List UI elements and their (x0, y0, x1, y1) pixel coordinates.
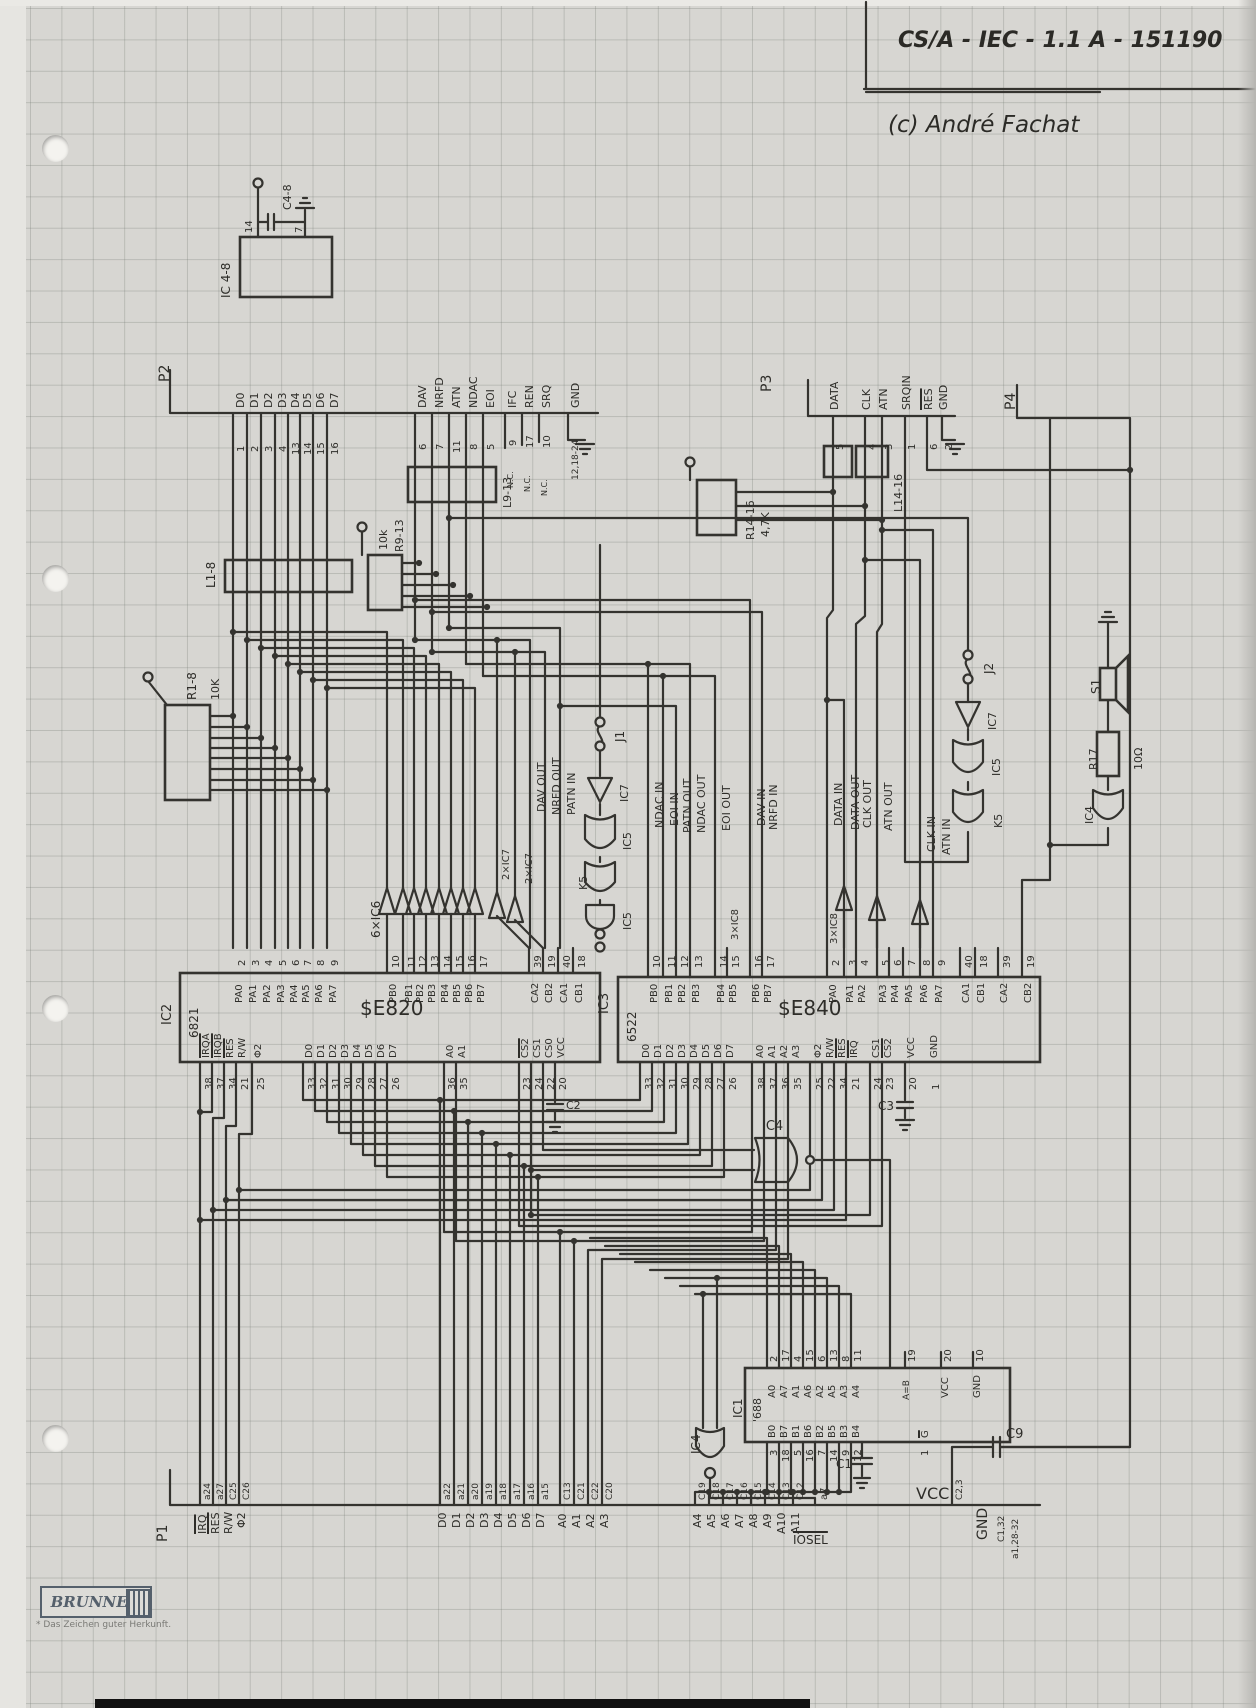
a0: A0 (557, 1513, 568, 1528)
r-w: R/W (223, 1512, 234, 1534)
pb1: PB1 (405, 984, 415, 1003)
35: 35 (794, 1077, 804, 1090)
r-w: R/W (238, 1038, 248, 1058)
15: 15 (732, 955, 742, 968)
irq: IRQ (197, 1515, 208, 1535)
16: 16 (755, 955, 765, 968)
ca2: CA2 (531, 983, 541, 1003)
b6: B6 (804, 1425, 814, 1438)
c26: C26 (243, 1482, 252, 1500)
a4: A4 (852, 1385, 862, 1398)
a3: A3 (792, 1045, 802, 1058)
buffer-2xic7 (489, 892, 523, 922)
d3: D3 (479, 1512, 490, 1527)
33: 33 (645, 1077, 655, 1090)
a7: a7 (820, 1488, 830, 1501)
28: 28 (368, 1077, 378, 1090)
c14: C14 (769, 1482, 778, 1500)
pa4: PA4 (891, 984, 901, 1003)
d3: D3 (678, 1044, 688, 1058)
g: G (921, 1430, 931, 1438)
30: 30 (344, 1077, 354, 1090)
l14-16-choke (824, 446, 852, 477)
4: 4 (279, 446, 289, 452)
d6: D6 (521, 1512, 532, 1527)
c21: C21 (578, 1482, 587, 1500)
d7: D7 (726, 1044, 736, 1058)
pa0: PA0 (829, 984, 839, 1003)
20: 20 (944, 1349, 954, 1362)
a21: a21 (458, 1483, 467, 1500)
20: 20 (559, 1077, 569, 1090)
a18: a18 (500, 1483, 509, 1500)
13: 13 (830, 1349, 840, 1362)
r14-16: R14-16 (745, 500, 756, 540)
k5-left: K5 (578, 876, 589, 890)
gate-k5-right (953, 790, 983, 822)
40: 40 (965, 955, 975, 968)
c1-32: C1,32 (998, 1516, 1007, 1542)
6: 6 (292, 960, 302, 966)
dav: DAV (417, 385, 428, 408)
d7: D7 (329, 393, 340, 408)
c2: C2 (566, 1100, 581, 1111)
d5: D5 (702, 1044, 712, 1058)
vcc: VCC (916, 1486, 949, 1502)
ic4-center: IC4 (762, 1120, 783, 1133)
d4: D4 (493, 1512, 504, 1527)
2-ic7: 2×IC7 (525, 853, 535, 884)
3: 3 (849, 960, 859, 966)
39: 39 (1003, 955, 1013, 968)
res: RES (226, 1038, 236, 1058)
buffer-6xic6 (379, 888, 483, 914)
-2: Φ2 (254, 1044, 264, 1058)
d4: D4 (290, 393, 301, 408)
p4: P4 (1004, 393, 1018, 410)
3: 3 (770, 1450, 780, 1456)
schematic-page: C4-8147IC 4-8P2D0D1D2D3D4D5D6D7123413141… (0, 0, 1256, 1708)
a0: A0 (768, 1385, 778, 1398)
ren: REN (524, 385, 535, 408)
res: RES (838, 1038, 848, 1058)
a27: a27 (217, 1483, 226, 1500)
d0: D0 (437, 1512, 448, 1527)
6: 6 (894, 960, 904, 966)
a3: A3 (840, 1385, 850, 1398)
inverter-ic7-right (956, 702, 980, 727)
39: 39 (534, 955, 544, 968)
d2: D2 (263, 393, 274, 408)
29: 29 (356, 1077, 366, 1090)
c15: C15 (755, 1482, 764, 1500)
3-ic8: 3×IC8 (830, 913, 840, 944)
c16: C16 (741, 1482, 750, 1500)
8: 8 (842, 1356, 852, 1362)
ic5-right: IC5 (991, 758, 1002, 776)
ca1: CA1 (962, 983, 972, 1003)
17: 17 (526, 435, 536, 448)
ic4-8-box (240, 237, 332, 297)
ndac-in: NDAC IN (654, 782, 665, 829)
20: 20 (909, 1077, 919, 1090)
d3: D3 (277, 393, 288, 408)
inverter-ic7-left (588, 778, 612, 802)
35: 35 (460, 1077, 470, 1090)
vcc: VCC (557, 1037, 567, 1058)
s1-cone (1116, 656, 1128, 712)
11: 11 (453, 440, 463, 453)
d0: D0 (642, 1044, 652, 1058)
gnd: GND (973, 1375, 983, 1398)
nrfd: NRFD (434, 377, 445, 408)
gnd: GND (930, 1035, 940, 1058)
d7: D7 (535, 1512, 546, 1527)
15: 15 (317, 442, 327, 455)
c2-3: C2,3 (956, 1479, 965, 1500)
a5: A5 (828, 1385, 838, 1398)
drawing-title: CS/A - IEC - 1.1 A - 151190 (898, 28, 1222, 53)
11: 11 (408, 955, 418, 968)
a9: A9 (762, 1513, 773, 1528)
pb2: PB2 (678, 984, 688, 1003)
37: 37 (217, 1077, 227, 1090)
34: 34 (840, 1077, 850, 1090)
d1: D1 (654, 1044, 664, 1058)
scan-artifact-bar (95, 1699, 810, 1708)
6-ic6: 6×IC6 (370, 901, 382, 938)
brunnen-glyph-icon (126, 1589, 150, 1617)
5: 5 (882, 960, 892, 966)
pb6: PB6 (752, 984, 762, 1003)
ca2: CA2 (1000, 983, 1010, 1003)
srq: SRQ (541, 385, 552, 408)
srqin: SRQIN (901, 375, 912, 410)
nor-bubble (806, 1156, 814, 1164)
pb7: PB7 (764, 984, 774, 1003)
p1: P1 (156, 1525, 170, 1542)
a4: A4 (692, 1513, 703, 1528)
11: 11 (854, 1349, 864, 1362)
gnd: GND (976, 1508, 990, 1540)
d1: D1 (317, 1044, 327, 1058)
r9-13: R9-13 (394, 519, 405, 552)
a1: A1 (768, 1045, 778, 1058)
wires-handshake (415, 518, 968, 948)
l14-16: L14-16 (893, 474, 904, 512)
wires-resistor-networks (148, 531, 487, 790)
a1-28-32: a1,28-32 (1012, 1518, 1021, 1558)
10: 10 (653, 955, 663, 968)
13: 13 (695, 955, 705, 968)
c1: C1 (836, 1458, 852, 1470)
7: 7 (818, 1450, 828, 1456)
9: 9 (938, 960, 948, 966)
d5: D5 (365, 1044, 375, 1058)
cs2: CS2 (521, 1038, 531, 1058)
a10: A10 (776, 1513, 787, 1535)
a1: A1 (571, 1513, 582, 1528)
10k: 10K (210, 679, 221, 700)
a5: A5 (706, 1513, 717, 1528)
27: 27 (380, 1077, 390, 1090)
pb1: PB1 (665, 984, 675, 1003)
pb3: PB3 (428, 984, 438, 1003)
10-: 10Ω (1133, 748, 1144, 770)
6821: 6821 (188, 1007, 200, 1038)
junction-dots (200, 470, 1130, 1492)
38: 38 (758, 1077, 768, 1090)
pa5: PA5 (905, 984, 915, 1003)
ndac: NDAC (468, 376, 479, 408)
10k: 10k (378, 530, 389, 550)
6: 6 (818, 1356, 828, 1362)
b0: B0 (768, 1425, 778, 1438)
a8: A8 (748, 1513, 759, 1528)
d4: D4 (353, 1044, 363, 1058)
27: 27 (717, 1077, 727, 1090)
vcc: VCC (941, 1377, 951, 1398)
j1: J1 (614, 731, 626, 742)
a16: a16 (528, 1483, 537, 1500)
l14-16-choke (856, 446, 888, 477)
7: 7 (908, 960, 918, 966)
40: 40 (563, 955, 573, 968)
gate-ic4-right (1093, 790, 1123, 819)
p2: P2 (158, 365, 172, 382)
1: 1 (932, 1084, 942, 1090)
gate-ic5-right (953, 740, 983, 772)
r14-16-box (697, 480, 736, 535)
ca1: CA1 (560, 983, 570, 1003)
r1-8: R1-8 (186, 672, 198, 700)
data: DATA (829, 382, 840, 410)
d7: D7 (389, 1044, 399, 1058)
clk: CLK (861, 389, 872, 410)
patn-out: PATN OUT (682, 779, 693, 833)
r9-13-box (368, 555, 402, 610)
a7: A7 (734, 1513, 745, 1528)
3: 3 (252, 960, 262, 966)
14: 14 (245, 220, 255, 233)
c20: C20 (606, 1482, 615, 1500)
iosel: IOSEL (793, 1534, 828, 1546)
32: 32 (657, 1077, 667, 1090)
c22: C22 (592, 1482, 601, 1500)
1: 1 (908, 444, 918, 450)
30: 30 (681, 1077, 691, 1090)
a11: A11 (790, 1513, 801, 1535)
terminals (144, 179, 973, 952)
b5: B5 (828, 1425, 838, 1438)
1: 1 (237, 446, 247, 452)
c9: C9 (1006, 1428, 1023, 1441)
-2: Φ2 (236, 1512, 247, 1528)
irqb: IRQB (214, 1033, 224, 1058)
a0: A0 (756, 1045, 766, 1058)
b1: B1 (792, 1425, 802, 1438)
24: 24 (874, 1077, 884, 1090)
pb7: PB7 (477, 984, 487, 1003)
19: 19 (548, 955, 558, 968)
14: 14 (444, 955, 454, 968)
gate-ic5-left (585, 815, 615, 848)
21: 21 (852, 1077, 862, 1090)
23: 23 (886, 1077, 896, 1090)
15: 15 (456, 955, 466, 968)
5: 5 (836, 444, 846, 450)
ic4-right: IC4 (1084, 806, 1095, 824)
b4: B4 (852, 1425, 862, 1438)
37: 37 (770, 1077, 780, 1090)
5: 5 (794, 1450, 804, 1456)
atn-out: ATN OUT (883, 782, 894, 831)
9: 9 (509, 440, 519, 446)
cb1: CB1 (575, 983, 585, 1003)
a7: A7 (780, 1385, 790, 1398)
cb2: CB2 (545, 983, 555, 1003)
12: 12 (419, 955, 429, 968)
17: 17 (767, 955, 777, 968)
26: 26 (729, 1077, 739, 1090)
atn: ATN (878, 388, 889, 410)
-2: Φ2 (814, 1044, 824, 1058)
d4: D4 (690, 1044, 700, 1058)
b2: B2 (816, 1425, 826, 1438)
pa2: PA2 (858, 984, 868, 1003)
4: 4 (265, 960, 275, 966)
15: 15 (806, 1349, 816, 1362)
d6: D6 (377, 1044, 387, 1058)
c25: C25 (230, 1482, 239, 1500)
pa3: PA3 (879, 984, 889, 1003)
21: 21 (241, 1077, 251, 1090)
d3: D3 (341, 1044, 351, 1058)
a19: a19 (486, 1483, 495, 1500)
d6: D6 (714, 1044, 724, 1058)
irqa: IRQA (202, 1033, 212, 1058)
j2: J2 (983, 663, 995, 674)
ic4-8: IC 4-8 (220, 263, 232, 298)
dav-in: DAV IN (756, 788, 767, 826)
pb2: PB2 (416, 984, 426, 1003)
schematic-drawing (0, 0, 1256, 1708)
a1: A1 (792, 1385, 802, 1398)
10: 10 (976, 1349, 986, 1362)
nand-bubble (596, 930, 605, 939)
2: 2 (770, 1356, 780, 1362)
pa5: PA5 (302, 984, 312, 1003)
24: 24 (535, 1077, 545, 1090)
d0: D0 (235, 393, 246, 408)
pa7: PA7 (329, 984, 339, 1003)
14: 14 (304, 442, 314, 455)
clk-in: CLK IN (926, 816, 937, 852)
pa6: PA6 (920, 984, 930, 1003)
13: 13 (292, 442, 302, 455)
ic3: IC3 (598, 993, 611, 1014)
eoi: EOI (485, 389, 496, 408)
pa0: PA0 (235, 984, 245, 1003)
17: 17 (480, 955, 490, 968)
eoi-out: EOI OUT (721, 785, 732, 831)
pb4: PB4 (441, 984, 451, 1003)
dav-out: DAV OUT (536, 762, 547, 812)
23: 23 (523, 1077, 533, 1090)
a6: A6 (720, 1513, 731, 1528)
3: 3 (885, 444, 895, 450)
8: 8 (317, 960, 327, 966)
pa1: PA1 (249, 984, 259, 1003)
4: 4 (794, 1356, 804, 1362)
12: 12 (854, 1450, 864, 1463)
13: 13 (431, 955, 441, 968)
gate-ic5-nand (586, 905, 614, 929)
a0: A0 (446, 1045, 456, 1058)
pa1: PA1 (846, 984, 856, 1003)
7: 7 (295, 227, 305, 233)
a2: A2 (585, 1513, 596, 1528)
ic5-nand: IC5 (622, 912, 633, 930)
copyright-note: (c) André Fachat (888, 112, 1079, 138)
5: 5 (279, 960, 289, 966)
a6: A6 (804, 1385, 814, 1398)
38: 38 (205, 1077, 215, 1090)
c4-8: C4-8 (282, 184, 293, 210)
nrfd-in: NRFD IN (768, 784, 779, 830)
9: 9 (842, 1450, 852, 1456)
31: 31 (332, 1077, 342, 1090)
c12: C12 (797, 1482, 806, 1500)
pb3: PB3 (692, 984, 702, 1003)
d1: D1 (451, 1512, 462, 1527)
d2: D2 (329, 1044, 339, 1058)
c19: C19 (699, 1482, 708, 1500)
ndac-out: NDAC OUT (696, 775, 707, 833)
vcc: VCC (907, 1037, 917, 1058)
16: 16 (331, 442, 341, 455)
pb5: PB5 (453, 984, 463, 1003)
a15: a15 (542, 1483, 551, 1500)
9: 9 (331, 960, 341, 966)
atn: ATN (451, 386, 462, 408)
paper-edge-right (1238, 0, 1256, 1708)
34: 34 (229, 1077, 239, 1090)
10: 10 (543, 435, 553, 448)
11: 11 (668, 955, 678, 968)
pb0: PB0 (650, 984, 660, 1003)
l1-8: L1-8 (205, 562, 217, 588)
a17: a17 (514, 1483, 523, 1500)
k5-right: K5 (993, 814, 1004, 828)
cs1: CS1 (872, 1038, 882, 1058)
19: 19 (1027, 955, 1037, 968)
p3: P3 (760, 375, 774, 392)
cs1: CS1 (533, 1038, 543, 1058)
6: 6 (930, 444, 940, 450)
32: 32 (320, 1077, 330, 1090)
2: 2 (832, 960, 842, 966)
7: 7 (304, 960, 314, 966)
22: 22 (828, 1077, 838, 1090)
l9-13: L9-13 (502, 477, 513, 508)
2: 2 (251, 446, 261, 452)
10: 10 (392, 955, 402, 968)
d6: D6 (315, 393, 326, 408)
d2: D2 (465, 1512, 476, 1527)
6: 6 (419, 444, 429, 450)
pa7: PA7 (935, 984, 945, 1003)
